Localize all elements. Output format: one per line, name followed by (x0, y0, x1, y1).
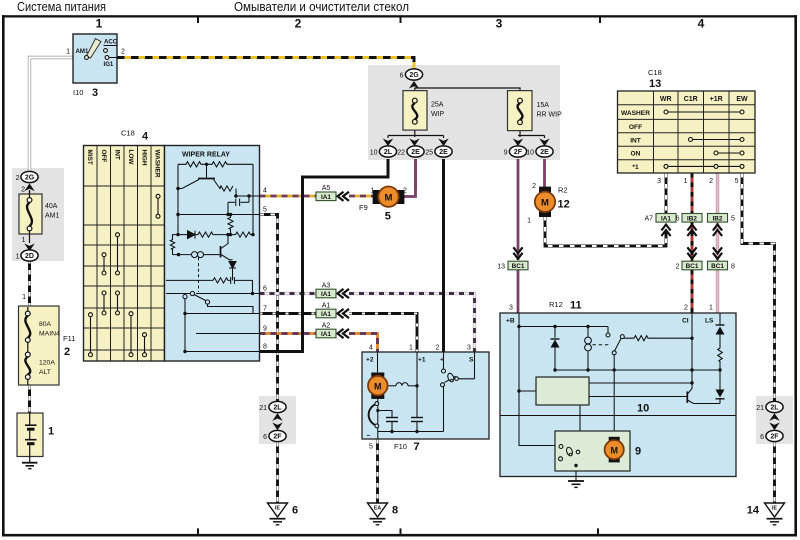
svg-text:OFF: OFF (629, 124, 642, 131)
svg-text:2: 2 (676, 264, 680, 271)
svg-text:C1R: C1R (684, 96, 698, 103)
svg-text:8: 8 (731, 264, 735, 271)
svg-text:MIST: MIST (86, 150, 93, 165)
svg-text:Система питания: Система питания (17, 0, 106, 14)
svg-text:IA1: IA1 (321, 331, 331, 338)
svg-text:M: M (385, 193, 393, 204)
svg-text:LOW: LOW (127, 150, 134, 166)
svg-text:13: 13 (497, 264, 505, 271)
svg-text:–: – (367, 433, 371, 440)
svg-text:S: S (469, 357, 474, 364)
svg-text:EA: EA (374, 506, 381, 512)
svg-text:6: 6 (760, 434, 764, 441)
svg-text:5: 5 (731, 216, 735, 223)
svg-text:EW: EW (736, 96, 748, 103)
svg-text:2: 2 (709, 178, 713, 185)
svg-text:40A: 40A (45, 203, 58, 210)
svg-text:+2: +2 (366, 357, 374, 364)
svg-text:1: 1 (96, 17, 103, 31)
svg-text:10: 10 (526, 150, 534, 157)
svg-text:3: 3 (467, 345, 471, 352)
svg-text:1: 1 (66, 49, 70, 56)
svg-text:2E: 2E (439, 149, 448, 156)
svg-text:F9: F9 (359, 203, 368, 212)
svg-text:1: 1 (409, 345, 413, 352)
svg-text:F10: F10 (394, 442, 407, 451)
svg-text:25: 25 (425, 150, 433, 157)
svg-text:1: 1 (22, 294, 26, 301)
svg-text:RR WIP: RR WIP (537, 112, 563, 119)
svg-text:AM1: AM1 (76, 48, 89, 55)
svg-text:IA1: IA1 (321, 311, 331, 318)
svg-text:2L: 2L (770, 405, 779, 412)
svg-text:6: 6 (263, 434, 267, 441)
svg-text:11: 11 (570, 300, 582, 312)
svg-text:3: 3 (657, 178, 661, 185)
svg-text:21: 21 (259, 405, 267, 412)
svg-text:4: 4 (698, 17, 705, 31)
svg-text:+1: +1 (418, 357, 426, 364)
svg-text:+1R: +1R (710, 96, 723, 103)
svg-text:M: M (541, 198, 549, 209)
svg-text:6: 6 (292, 505, 298, 517)
svg-text:3: 3 (496, 17, 503, 31)
svg-text:4: 4 (142, 131, 149, 143)
svg-text:2: 2 (64, 346, 70, 358)
svg-text:OFF: OFF (100, 150, 107, 163)
svg-text:13: 13 (649, 78, 661, 90)
svg-text:IE: IE (772, 506, 777, 512)
svg-text:A3: A3 (322, 283, 331, 290)
svg-text:8: 8 (263, 344, 267, 351)
svg-text:BC1: BC1 (711, 263, 724, 270)
svg-text:IA1: IA1 (321, 291, 331, 298)
svg-text:8: 8 (392, 505, 398, 517)
svg-text:3: 3 (509, 305, 513, 312)
svg-text:C18: C18 (648, 68, 662, 77)
svg-text:WIPER RELAY: WIPER RELAY (182, 152, 230, 159)
svg-text:IA1: IA1 (321, 194, 331, 201)
svg-text:ON: ON (631, 151, 641, 158)
svg-text:+B: +B (506, 318, 515, 325)
svg-text:15A: 15A (537, 102, 550, 109)
svg-text:2: 2 (295, 17, 302, 31)
svg-text:A1: A1 (322, 303, 331, 310)
svg-text:C18: C18 (121, 129, 135, 138)
svg-text:IB2: IB2 (713, 216, 723, 223)
svg-text:A2: A2 (322, 323, 331, 330)
svg-text:2: 2 (16, 175, 20, 182)
svg-text:IB2: IB2 (687, 216, 697, 223)
svg-text:2D: 2D (25, 253, 34, 260)
svg-text:22: 22 (397, 150, 405, 157)
svg-text:10: 10 (370, 150, 378, 157)
svg-text:M: M (374, 381, 382, 391)
svg-text:IA1: IA1 (661, 216, 671, 223)
svg-text:WASHER: WASHER (621, 110, 650, 117)
svg-text:INT: INT (630, 137, 641, 144)
svg-text:1: 1 (16, 254, 20, 261)
svg-text:25A: 25A (431, 102, 444, 109)
svg-text:2G: 2G (25, 175, 35, 182)
svg-text:IG1: IG1 (104, 61, 114, 68)
svg-text:9: 9 (504, 150, 508, 157)
svg-text:BC1: BC1 (686, 263, 699, 270)
svg-text:INT: INT (114, 150, 121, 160)
svg-text:2: 2 (121, 49, 125, 56)
svg-text:21: 21 (756, 405, 764, 412)
svg-text:CI: CI (682, 318, 689, 325)
svg-text:Омыватели и очистители стекол: Омыватели и очистители стекол (234, 0, 409, 14)
svg-text:A7: A7 (644, 216, 653, 223)
svg-text:4: 4 (369, 345, 373, 352)
svg-text:9: 9 (635, 446, 641, 458)
svg-text:80A: 80A (39, 321, 52, 328)
svg-text:R2: R2 (558, 186, 568, 195)
svg-text:2F: 2F (770, 434, 779, 441)
svg-text:1: 1 (22, 237, 26, 244)
svg-text:6: 6 (400, 73, 404, 80)
svg-text:IE: IE (275, 506, 280, 512)
svg-text:WIP: WIP (431, 111, 445, 118)
svg-text:A5: A5 (322, 185, 331, 192)
svg-text:HIGH: HIGH (141, 150, 148, 166)
svg-text:5: 5 (369, 444, 373, 451)
svg-text:2F: 2F (514, 149, 523, 156)
svg-text:5: 5 (263, 207, 267, 214)
svg-text:2: 2 (21, 187, 25, 194)
svg-text:BC1: BC1 (512, 263, 525, 270)
svg-text:10: 10 (637, 403, 649, 415)
svg-text:2L: 2L (384, 149, 393, 156)
svg-text:2G: 2G (409, 72, 419, 79)
svg-text:R12: R12 (549, 300, 563, 309)
svg-text:M: M (610, 445, 618, 455)
svg-text:4: 4 (263, 188, 267, 195)
svg-text:1: 1 (709, 305, 713, 312)
svg-text:MAIN4: MAIN4 (39, 331, 60, 338)
svg-text:2L: 2L (273, 405, 282, 412)
svg-text:1: 1 (48, 426, 54, 438)
svg-text:5: 5 (385, 211, 391, 223)
svg-text:LS: LS (705, 318, 714, 325)
svg-text:1: 1 (684, 178, 688, 185)
svg-text:1: 1 (527, 218, 531, 225)
svg-text:3: 3 (92, 87, 98, 99)
svg-text:ALT: ALT (39, 369, 51, 376)
svg-text:6: 6 (676, 216, 680, 223)
svg-text:120A: 120A (39, 360, 55, 367)
svg-text:2: 2 (684, 305, 688, 312)
svg-text:ACC: ACC (104, 38, 118, 45)
svg-text:AM1: AM1 (45, 213, 60, 220)
svg-text:*1: *1 (632, 164, 639, 171)
svg-text:14: 14 (747, 505, 760, 517)
svg-text:WR: WR (660, 96, 672, 103)
svg-text:7: 7 (414, 441, 420, 453)
svg-text:6: 6 (263, 286, 267, 293)
svg-text:2: 2 (532, 183, 536, 190)
svg-text:2: 2 (436, 345, 440, 352)
svg-text:F11: F11 (63, 334, 75, 343)
svg-text:2E: 2E (540, 149, 549, 156)
svg-text:7: 7 (263, 306, 267, 313)
svg-text:12: 12 (558, 199, 570, 211)
svg-text:2E: 2E (411, 149, 420, 156)
svg-text:2F: 2F (273, 434, 282, 441)
svg-text:9: 9 (263, 326, 267, 333)
svg-text:5: 5 (735, 178, 739, 185)
svg-text:I10: I10 (73, 88, 83, 97)
svg-text:WASHER: WASHER (154, 150, 161, 178)
